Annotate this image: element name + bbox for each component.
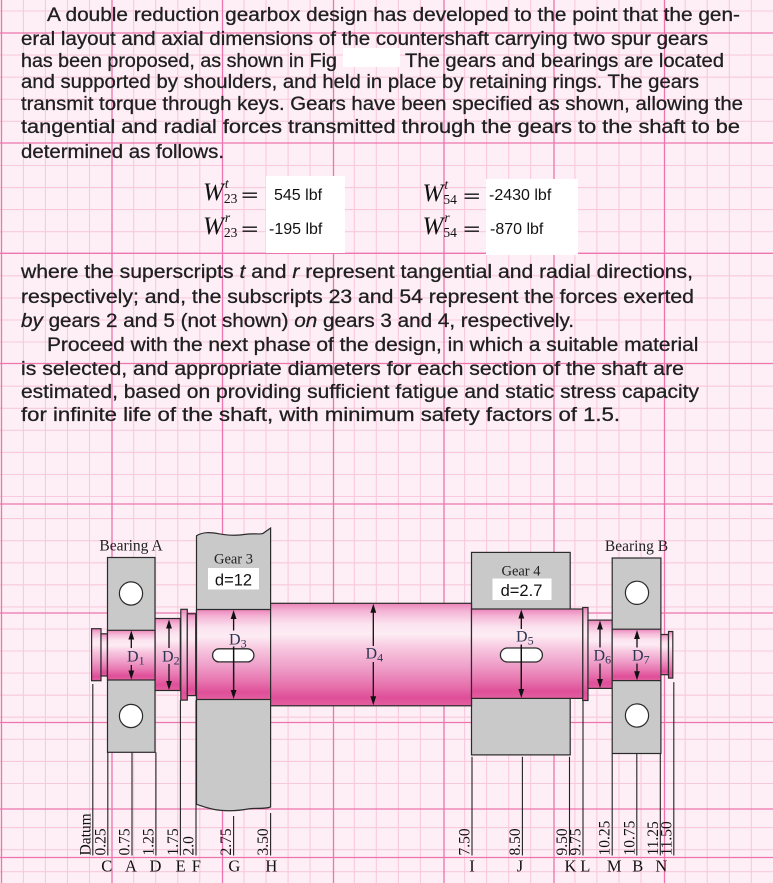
svg-text:8.50: 8.50 bbox=[507, 828, 524, 855]
svg-text:G: G bbox=[228, 857, 240, 876]
svg-text:J: J bbox=[517, 857, 524, 876]
svg-text:A: A bbox=[125, 857, 137, 876]
svg-text:H: H bbox=[265, 857, 277, 876]
svg-text:d=12: d=12 bbox=[215, 572, 252, 590]
svg-text:E: E bbox=[176, 857, 186, 876]
svg-text:F: F bbox=[192, 857, 201, 876]
svg-text:1.75: 1.75 bbox=[165, 828, 182, 855]
svg-text:I: I bbox=[469, 857, 475, 876]
svg-text:B: B bbox=[632, 857, 643, 876]
svg-text:3.50: 3.50 bbox=[255, 828, 272, 855]
svg-text:Bearing A: Bearing A bbox=[99, 538, 163, 555]
svg-text:C: C bbox=[101, 857, 112, 876]
svg-text:L: L bbox=[580, 857, 590, 876]
svg-text:1.25: 1.25 bbox=[140, 828, 157, 855]
svg-text:10.75: 10.75 bbox=[621, 820, 638, 855]
svg-text:9.75: 9.75 bbox=[568, 828, 585, 855]
svg-text:2.0: 2.0 bbox=[181, 836, 198, 856]
svg-text:0.75: 0.75 bbox=[117, 828, 134, 855]
svg-text:10.25: 10.25 bbox=[597, 820, 614, 855]
svg-text:Gear 4: Gear 4 bbox=[501, 564, 541, 580]
svg-text:0.25: 0.25 bbox=[92, 828, 109, 855]
svg-text:D: D bbox=[149, 857, 161, 876]
svg-text:d=2.7: d=2.7 bbox=[501, 582, 543, 600]
svg-text:K: K bbox=[565, 857, 577, 876]
svg-text:Gear 3: Gear 3 bbox=[214, 552, 253, 568]
svg-text:7.50: 7.50 bbox=[457, 828, 474, 855]
svg-text:N: N bbox=[655, 857, 667, 876]
svg-text:Bearing B: Bearing B bbox=[605, 538, 668, 555]
svg-text:2.75: 2.75 bbox=[218, 828, 235, 855]
svg-text:11.50: 11.50 bbox=[658, 821, 675, 856]
svg-text:M: M bbox=[607, 857, 622, 876]
